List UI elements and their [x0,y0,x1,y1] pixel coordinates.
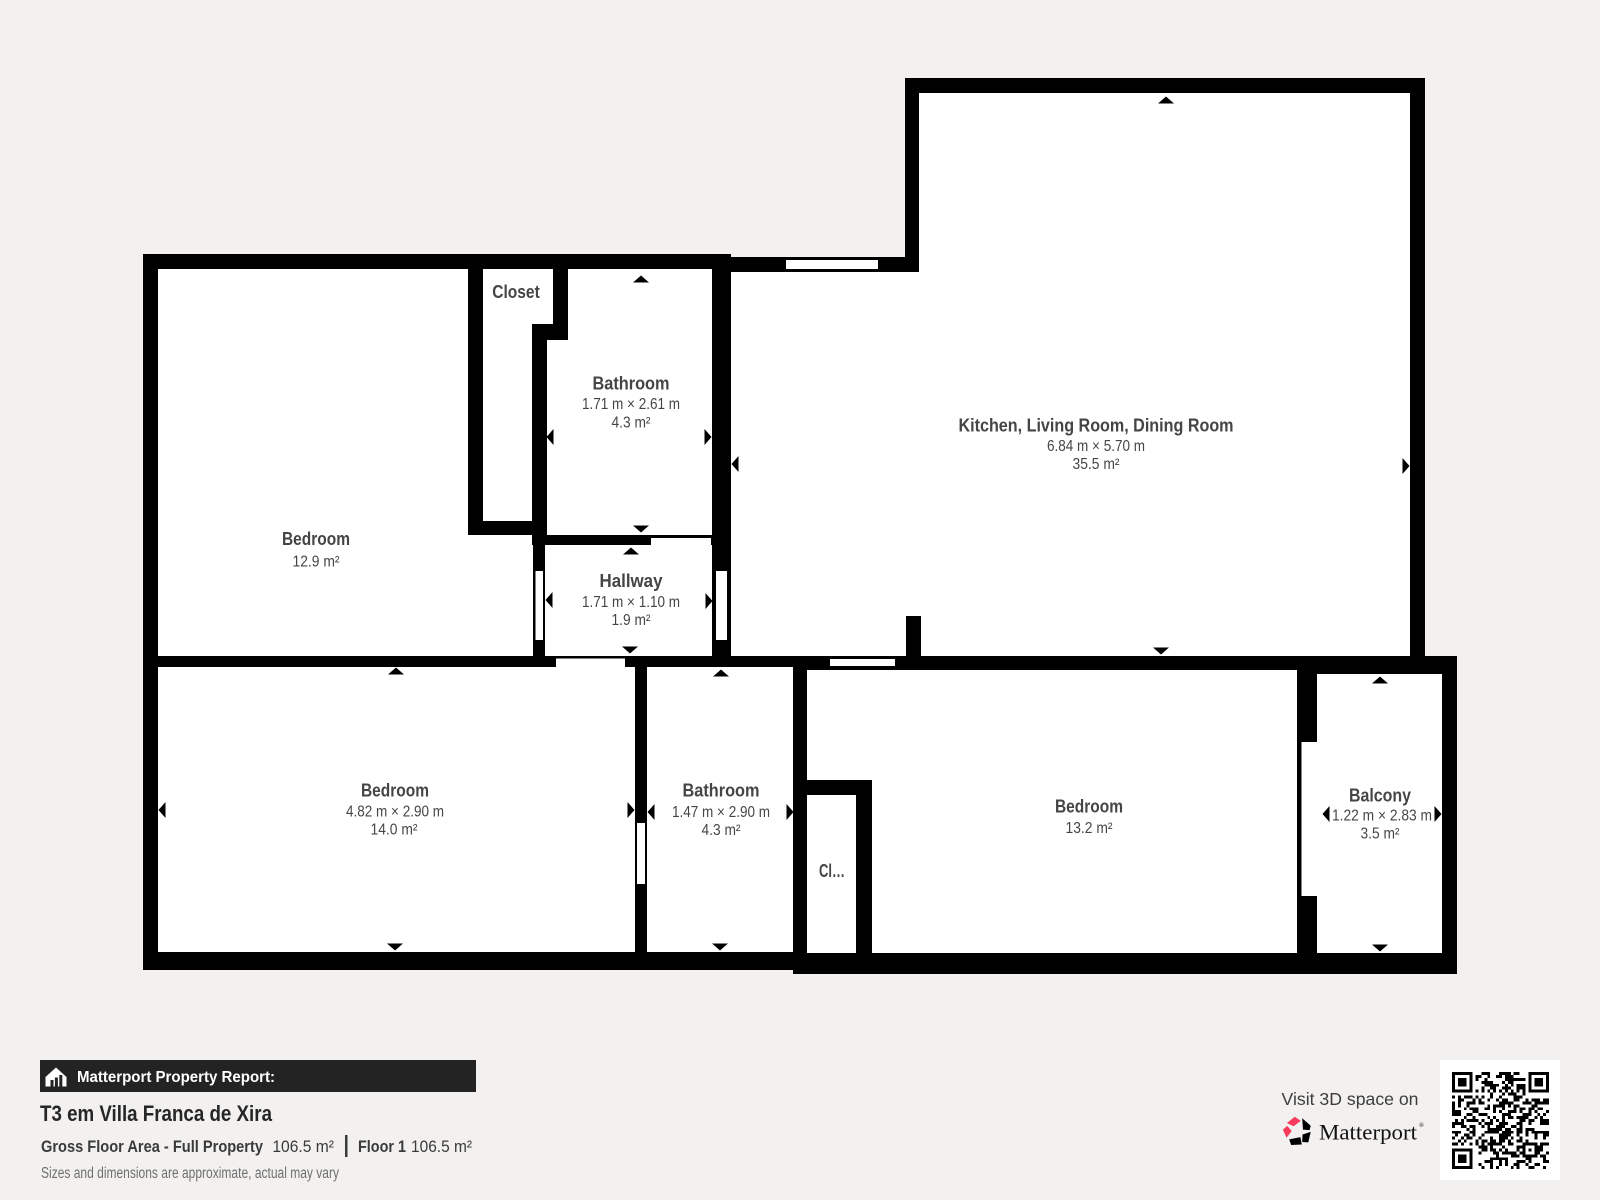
svg-text:1.47 m × 2.90 m: 1.47 m × 2.90 m [672,804,770,821]
svg-text:Visit 3D space on: Visit 3D space on [1282,1089,1419,1109]
svg-text:Matterport: Matterport [1319,1120,1417,1145]
svg-text:Bedroom: Bedroom [282,529,350,549]
svg-text:1.9 m²: 1.9 m² [612,612,651,629]
svg-text:13.2 m²: 13.2 m² [1066,820,1113,837]
svg-text:14.0 m²: 14.0 m² [371,822,418,839]
svg-text:4.3 m²: 4.3 m² [612,415,651,432]
svg-text:Gross Floor Area - Full Proper: Gross Floor Area - Full Property 106.5 m… [41,1138,334,1156]
svg-text:3.5 m²: 3.5 m² [1361,826,1400,843]
svg-text:Balcony: Balcony [1349,786,1411,806]
svg-text:T3 em Villa Franca de Xira: T3 em Villa Franca de Xira [40,1101,273,1126]
svg-text:Hallway: Hallway [600,571,663,591]
svg-text:1.71 m × 2.61 m: 1.71 m × 2.61 m [582,396,680,413]
svg-text:Bathroom: Bathroom [683,781,760,801]
svg-text:Kitchen, Living Room, Dining R: Kitchen, Living Room, Dining Room [959,416,1234,436]
svg-text:Matterport Property Report:: Matterport Property Report: [77,1069,275,1086]
svg-text:Closet: Closet [492,282,540,302]
svg-text:4.82 m × 2.90 m: 4.82 m × 2.90 m [346,804,444,821]
svg-text:6.84 m × 5.70 m: 6.84 m × 5.70 m [1047,438,1145,455]
svg-text:Floor 1106.5 m²: Floor 1106.5 m² [358,1138,472,1156]
svg-text:35.5 m²: 35.5 m² [1073,456,1120,473]
svg-text:®: ® [1419,1122,1424,1129]
svg-text:Cl…: Cl… [819,861,845,881]
svg-text:1.71 m × 1.10 m: 1.71 m × 1.10 m [582,594,680,611]
svg-text:Sizes and dimensions are appro: Sizes and dimensions are approximate, ac… [41,1165,339,1182]
svg-text:12.9 m²: 12.9 m² [293,554,340,571]
svg-text:Bedroom: Bedroom [361,781,429,801]
svg-text:Bedroom: Bedroom [1055,797,1123,817]
svg-text:1.22 m × 2.83 m: 1.22 m × 2.83 m [1332,808,1432,825]
svg-text:Bathroom: Bathroom [593,374,670,394]
svg-text:4.3 m²: 4.3 m² [702,822,741,839]
